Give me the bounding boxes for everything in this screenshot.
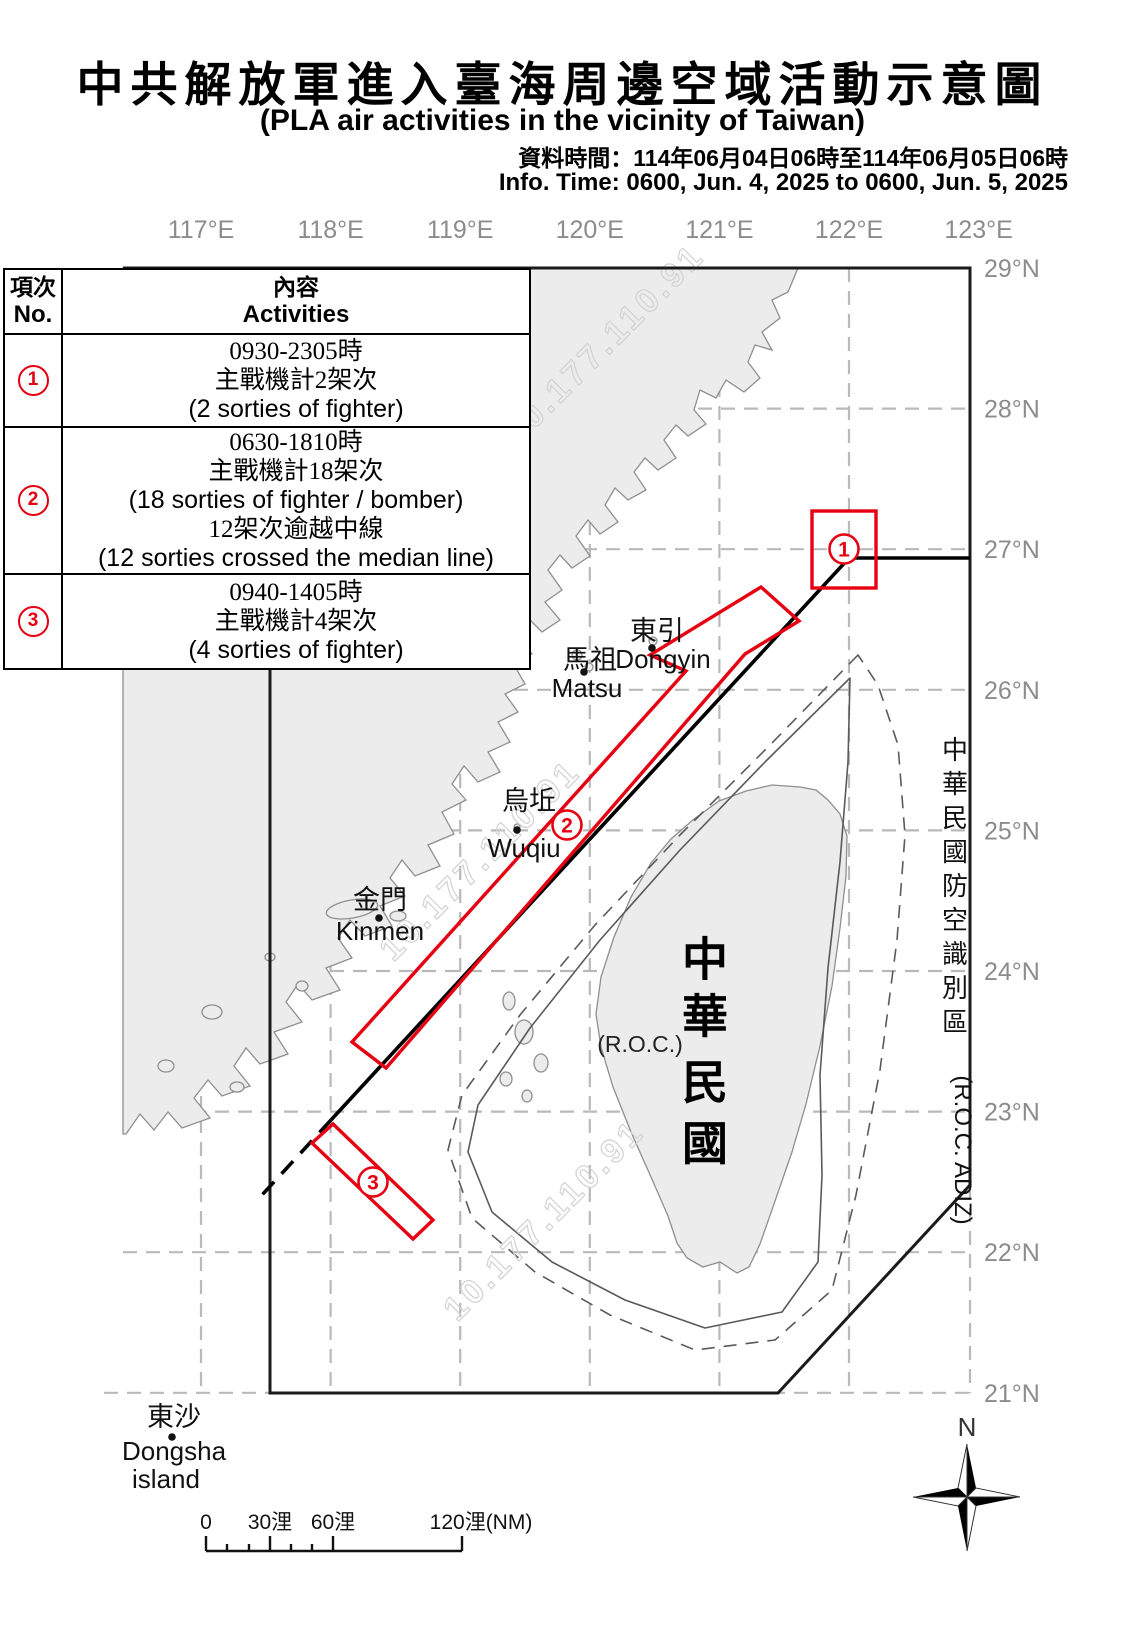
adiz-label-char: 國 [942,838,968,867]
place-label-en2-dongsha: island [132,1464,200,1494]
activity-number-badge: 1 [18,365,49,396]
activity-detail-line: 主戰機計18架次 [63,457,529,486]
activity-row-3: 30940-1405時主戰機計4架次(4 sorties of fighter) [4,574,530,669]
activity-detail-cell: 0630-1810時主戰機計18架次(18 sorties of fighter… [62,427,530,574]
activities-table-header: 項次 No. 內容 Activities [4,269,530,334]
adiz-label-char: 中 [942,736,968,765]
small-island [500,1072,512,1086]
activity-detail-line: (12 sorties crossed the median line) [63,544,529,573]
lat-label: 28°N [984,396,1040,424]
taiwan-label-char: 民 [682,1058,728,1109]
header-activities-cell: 內容 Activities [62,269,530,334]
activity-no-cell: 3 [4,574,62,669]
lon-label: 121°E [685,216,753,244]
place-label-zh-dongsha: 東沙 [147,1402,201,1432]
marker-number: 2 [561,815,573,838]
scale-label: 60浬 [311,1511,355,1534]
lat-label: 26°N [984,677,1040,705]
header-activities-zh: 內容 [63,275,529,301]
lat-label: 23°N [984,1099,1040,1127]
place-label-en-dongsha: Dongsha [122,1436,227,1466]
activity-marker-1: 1 [830,535,859,564]
activity-number-badge: 2 [18,485,49,516]
lon-label: 119°E [427,216,494,244]
adiz-label-char: 防 [942,872,968,901]
activity-number-badge: 3 [18,606,49,637]
place-label-zh-dongyin: 東引 [630,616,684,646]
place-label-zh-wuqiu: 烏坵 [502,786,556,816]
small-island [534,1054,548,1072]
header-no-zh: 項次 [5,275,61,301]
place-label-zh-kinmen: 金門 [353,885,407,915]
small-island [296,981,308,991]
lat-label: 24°N [984,958,1040,986]
marker-number: 1 [838,539,850,562]
adiz-label-char: 區 [942,1008,968,1037]
activity-no-cell: 1 [4,334,62,427]
adiz-label-char: 華 [942,770,968,799]
activity-row-1: 10930-2305時主戰機計2架次(2 sorties of fighter) [4,334,530,427]
small-island [230,1082,244,1092]
header-no-en: No. [5,301,61,328]
median-line-dashed-tail [262,1120,331,1195]
adiz-label-en: (R.O.C. ADIZ) [949,1075,976,1224]
adiz-label-char: 空 [942,906,968,935]
activity-no-cell: 2 [4,427,62,574]
activity-detail-line: 0630-1810時 [63,428,529,457]
activity-detail-cell: 0930-2305時主戰機計2架次(2 sorties of fighter) [62,334,530,427]
place-label-en-dongyin: Dongyin [615,644,710,674]
compass-rose: N [913,1412,1020,1551]
compass-north-label: N [958,1412,977,1442]
place-label-en-matsu: Matsu [552,673,623,703]
compass-arm-light [967,1488,1020,1497]
roc-label: (R.O.C.) [597,1031,683,1057]
small-island [503,992,515,1010]
page: 中共解放軍進入臺海周邊空域活動示意圖 (PLA air activities i… [0,0,1125,1625]
marker-number: 3 [367,1172,379,1195]
lat-label: 25°N [984,817,1040,845]
lon-label: 118°E [297,216,364,244]
adiz-label-char: 別 [942,974,968,1003]
adiz-label-char: 民 [942,804,968,833]
activity-row-2: 20630-1810時主戰機計18架次(18 sorties of fighte… [4,427,530,574]
place-label-zh-matsu: 馬祖 [563,645,617,675]
activities-table: 項次 No. 內容 Activities 10930-2305時主戰機計2架次(… [3,268,531,670]
lat-label: 22°N [984,1239,1040,1267]
compass-arm-dark [913,1488,967,1497]
scale-label: 120浬(NM) [430,1511,533,1534]
lat-label: 27°N [984,536,1040,564]
taiwan-label-char: 華 [682,992,728,1043]
lon-label: 117°E [168,216,235,244]
activity-detail-line: 0940-1405時 [63,578,529,607]
lon-label: 122°E [815,216,883,244]
lon-label: 120°E [556,216,624,244]
adiz-label-char: 識 [942,940,968,969]
small-island [522,1090,532,1102]
small-island [515,1020,533,1044]
activity-marker-3: 3 [359,1168,388,1197]
watermark-text: 10.177.110.91 [436,1112,652,1328]
header-no-cell: 項次 No. [4,269,62,334]
lon-label: 123°E [944,216,1012,244]
taiwan-label-char: 國 [682,1119,728,1170]
scale-bar: 030浬60浬120浬(NM) [200,1511,532,1551]
header-activities-en: Activities [63,301,529,328]
compass-arm-light [958,1444,967,1497]
scale-label: 0 [200,1511,212,1534]
taiwan-label-char: 中 [682,935,728,986]
activity-detail-line: (4 sorties of fighter) [63,636,529,665]
small-island [158,1060,174,1072]
compass-arm-light [967,1497,976,1551]
activity-detail-line: 12架次逾越中線 [63,515,529,544]
activity-detail-line: 主戰機計2架次 [63,366,529,395]
place-label-en-wuqiu: Wuqiu [487,833,560,863]
taiwan-adiz-map: 10.177.110.9110.177.110.9110.177.110.911… [0,0,1125,1625]
activity-detail-line: (2 sorties of fighter) [63,395,529,424]
activity-detail-line: 主戰機計4架次 [63,607,529,636]
lat-label: 29°N [984,255,1040,283]
activity-detail-line: 0930-2305時 [63,337,529,366]
lat-label: 21°N [984,1380,1040,1408]
activity-detail-cell: 0940-1405時主戰機計4架次(4 sorties of fighter) [62,574,530,669]
small-island [202,1005,222,1019]
compass-arm-light [913,1497,967,1506]
place-label-en-kinmen: Kinmen [336,916,424,946]
activity-detail-line: (18 sorties of fighter / bomber) [63,486,529,515]
scale-label: 30浬 [248,1511,292,1534]
